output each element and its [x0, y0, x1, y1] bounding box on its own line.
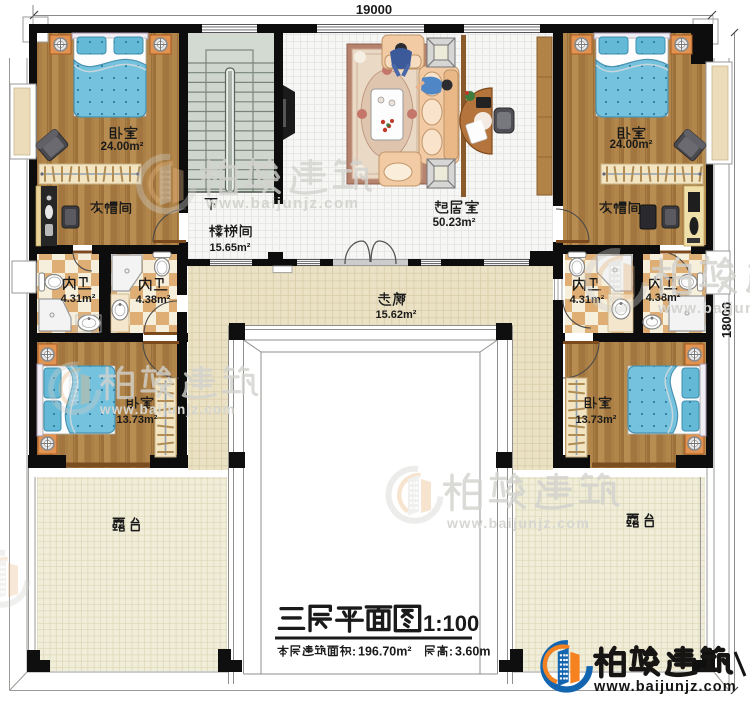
svg-text:24.00m²: 24.00m² [610, 139, 653, 151]
svg-text:15.62m²: 15.62m² [376, 309, 417, 321]
svg-text:www.baijunjz.com: www.baijunjz.com [99, 402, 236, 417]
svg-text:24.00m²: 24.00m² [101, 141, 144, 153]
svg-text:4.31m²: 4.31m² [61, 293, 96, 305]
svg-text:4.38m²: 4.38m² [136, 294, 171, 306]
svg-text:19000: 19000 [356, 2, 392, 17]
svg-text:www.baijunjz.com: www.baijunjz.com [593, 679, 737, 695]
svg-text:www.baijunjz.com: www.baijunjz.com [446, 515, 590, 531]
svg-text:196.70m²: 196.70m² [358, 645, 412, 659]
svg-text::: : [352, 645, 356, 659]
svg-text::: : [449, 645, 453, 659]
svg-text:1:100: 1:100 [423, 611, 479, 636]
svg-text:15.65m²: 15.65m² [210, 242, 251, 254]
svg-text:13.73m²: 13.73m² [576, 414, 617, 426]
svg-text:50.23m²: 50.23m² [433, 217, 476, 229]
svg-text:3.60m: 3.60m [455, 645, 490, 659]
svg-text:www.baijunjz.com: www.baijunjz.com [205, 195, 359, 212]
svg-text:www.baijunjz.com: www.baijunjz.com [657, 300, 750, 317]
